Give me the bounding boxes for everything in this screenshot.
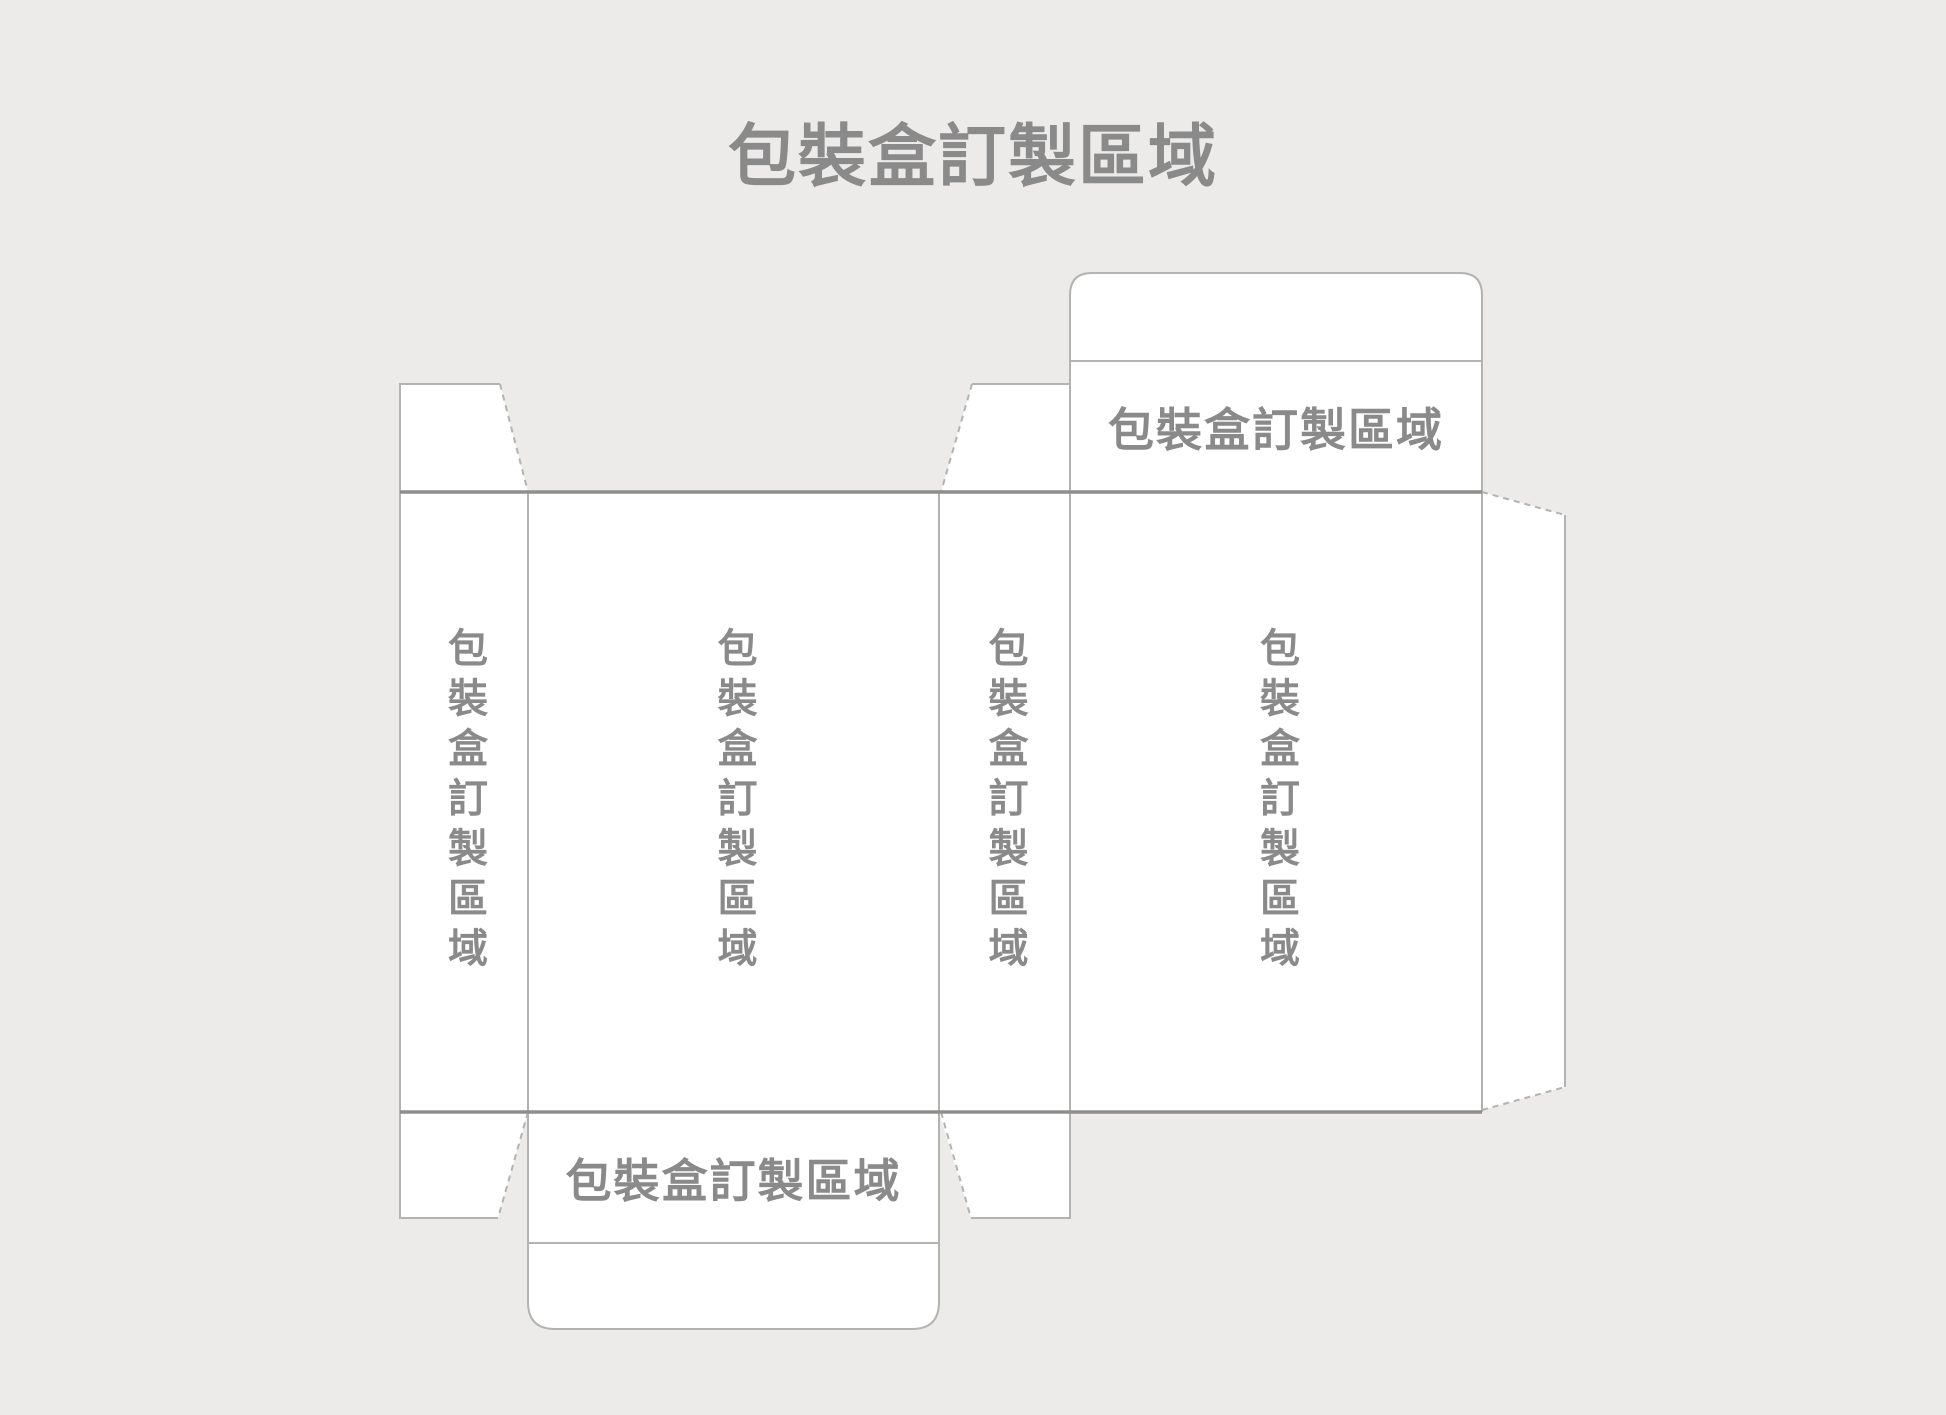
side-panel-left-label: 包裝盒訂製區域: [400, 492, 528, 1112]
front-panel-bottom-strip-label: 包裝盒訂製區域: [528, 1112, 939, 1243]
back-panel-label-text: 包裝盒訂製區域: [1256, 627, 1296, 977]
dust-flap-top-right-fill: [941, 384, 1070, 492]
dust-flap-bottom-left-fill: [400, 1112, 528, 1218]
page-title: 包裝盒訂製區域: [0, 112, 1946, 202]
dust-flap-top-left-fill: [400, 384, 528, 492]
glue-flap-fill: [1482, 492, 1565, 1110]
dust-flap-bottom-right-fill: [939, 1112, 1070, 1218]
side-panel-right-label-text: 包裝盒訂製區域: [985, 627, 1025, 977]
front-panel-label-text: 包裝盒訂製區域: [714, 627, 754, 977]
front-panel-label: 包裝盒訂製區域: [528, 492, 939, 1112]
box-dieline-canvas: 包裝盒訂製區域 包裝盒訂製區域 包裝盒訂製區域 包裝盒訂製區域 包裝盒訂製區域 …: [0, 0, 1946, 1415]
side-panel-left-label-text: 包裝盒訂製區域: [444, 627, 484, 977]
back-panel-label: 包裝盒訂製區域: [1070, 492, 1482, 1112]
side-panel-right-label: 包裝盒訂製區域: [939, 492, 1070, 1112]
back-panel-top-strip-label: 包裝盒訂製區域: [1070, 361, 1482, 492]
